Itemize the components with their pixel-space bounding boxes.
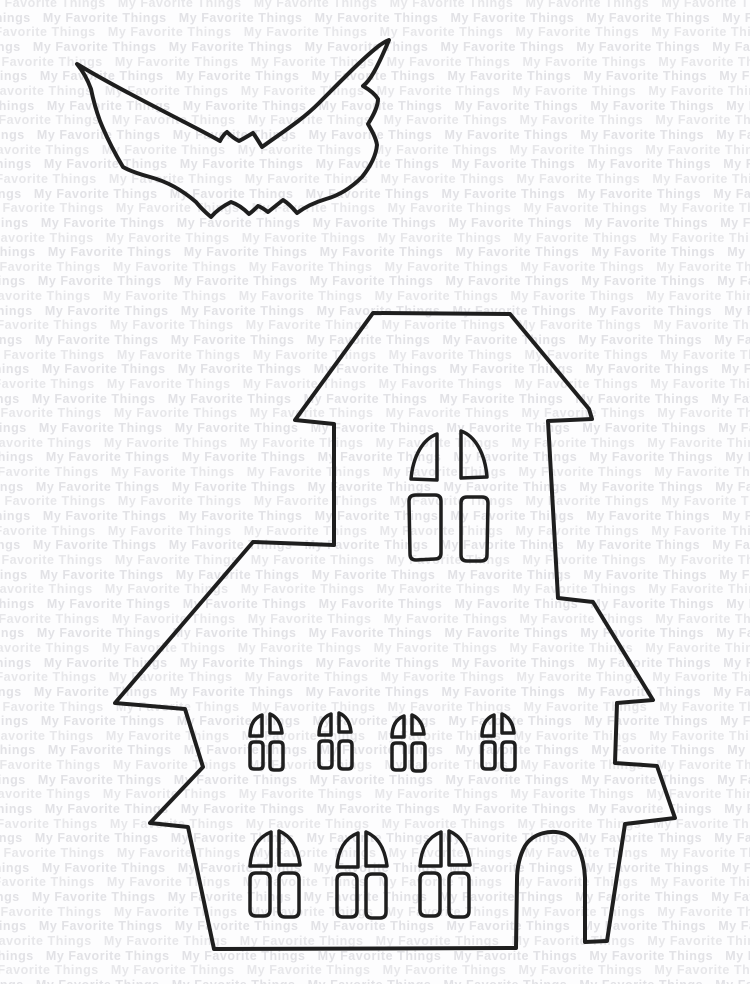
window-pane <box>279 873 299 917</box>
window-pane <box>337 833 358 867</box>
small-window <box>392 715 425 771</box>
window-pane <box>411 434 437 480</box>
window-pane <box>366 874 386 918</box>
window-pane <box>270 714 282 733</box>
small-window <box>319 713 352 769</box>
window-pane <box>250 715 262 736</box>
window-pane <box>392 743 405 770</box>
window-pane <box>250 873 270 916</box>
small-window <box>250 714 283 770</box>
window-pane <box>250 832 271 866</box>
window-pane <box>412 715 424 734</box>
window-pane <box>250 742 263 769</box>
haunted-house-die-outline <box>115 313 675 949</box>
window-pane <box>502 714 514 733</box>
tower-window <box>409 431 488 561</box>
window-pane <box>279 831 300 865</box>
large-window <box>337 832 387 918</box>
window-pane <box>482 715 494 736</box>
window-pane <box>319 714 331 735</box>
large-windows-row <box>250 831 470 918</box>
window-pane <box>339 713 351 732</box>
product-image-canvas: My Favorite Things My Favorite Things My… <box>0 0 750 984</box>
window-pane <box>461 497 488 561</box>
window-pane <box>319 741 332 768</box>
window-pane <box>412 743 425 771</box>
large-window <box>420 831 470 917</box>
die-cut-illustration <box>0 0 750 984</box>
window-pane <box>482 742 495 769</box>
window-pane <box>409 495 441 560</box>
bat-die-outline <box>77 40 389 217</box>
window-pane <box>392 716 404 737</box>
window-pane <box>449 873 469 917</box>
window-pane <box>449 831 470 865</box>
window-pane <box>502 742 515 770</box>
window-pane <box>461 431 487 478</box>
window-pane <box>420 873 440 916</box>
small-windows-row <box>250 713 515 771</box>
window-pane <box>366 832 387 866</box>
window-pane <box>270 742 283 770</box>
window-pane <box>337 874 357 917</box>
window-pane <box>420 832 441 866</box>
window-pane <box>339 741 352 769</box>
small-window <box>482 714 515 770</box>
large-window <box>250 831 300 917</box>
